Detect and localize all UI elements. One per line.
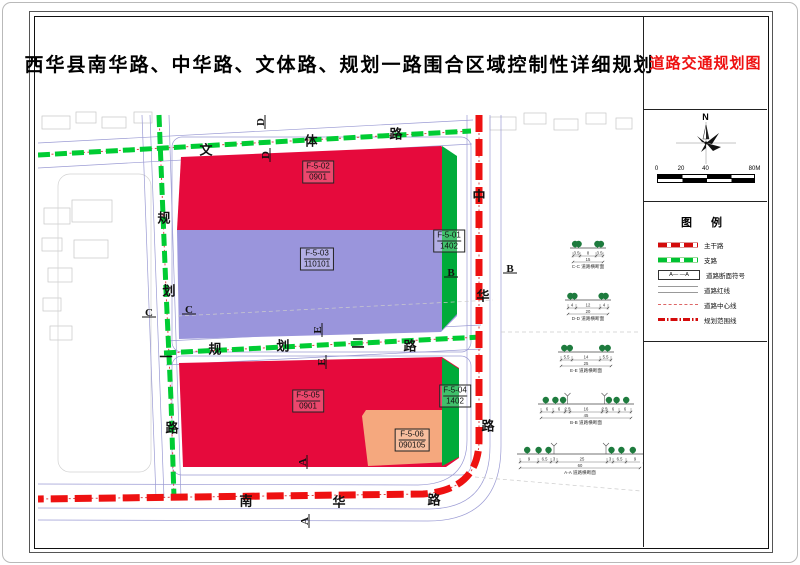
- parcel-label-F-5-06: F-5-06090105: [395, 429, 430, 452]
- map-shape: 4: [571, 302, 574, 307]
- road-name-char: 路: [427, 493, 441, 508]
- legend-item-section: A— —A道路断面符号: [658, 270, 767, 279]
- road-name-char: 路: [389, 127, 403, 142]
- section-marker-A: A: [299, 514, 311, 528]
- map-shape: 9: [528, 456, 531, 461]
- road-name-char: 华: [332, 495, 345, 510]
- road-name-char: 南: [239, 494, 252, 509]
- map-shape: 3.5: [597, 250, 603, 255]
- legend-label: 道路断面符号: [706, 270, 745, 280]
- map-shape: 12: [586, 302, 591, 307]
- parcel-use-code: 0901: [306, 172, 330, 183]
- map-shape: 8: [587, 250, 590, 255]
- parcel-F-5-04-area: [442, 358, 459, 466]
- section-marker-B: B: [503, 263, 517, 275]
- legend-item-arterial: 主干路: [658, 240, 767, 249]
- map-shape: 2.5: [602, 406, 608, 411]
- map-shape: 25: [584, 361, 589, 366]
- parcel-use-code: 1402: [437, 241, 461, 252]
- section-marker-D: D: [260, 148, 272, 162]
- road-name-char: 一: [159, 350, 172, 365]
- road-name-char: 划: [276, 339, 289, 354]
- road-name-char: 路: [481, 419, 495, 434]
- map-shape: [565, 393, 568, 396]
- map-shape: [603, 443, 606, 446]
- map-shape: 6: [612, 406, 615, 411]
- legend-item-centerline: 道路中心线: [658, 300, 767, 309]
- legend-label: 主干路: [704, 240, 724, 250]
- road-name-char: 规: [208, 342, 221, 357]
- cross-section-D-D: 412420D-D 道路横断面: [565, 293, 611, 322]
- map-shape: [605, 393, 608, 396]
- parcel-code: F-5-03: [304, 249, 330, 259]
- plan-map: 文体路规划一路规划二路中华路南华路DDCCEEBBAA3.583.515C-C …: [38, 110, 643, 547]
- tree-icon: [545, 447, 551, 453]
- map-shape: 3.5: [574, 250, 580, 255]
- parcel-label-F-5-03: F-5-03110101: [300, 248, 334, 271]
- tree-icon: [623, 397, 629, 403]
- parcel-label-F-5-05: F-5-050901: [292, 390, 324, 413]
- map-shape: 6: [558, 406, 561, 411]
- scale-bar: 0204080M: [657, 166, 755, 186]
- map-shape: 60: [578, 463, 583, 468]
- parcel-use-code: 0901: [296, 401, 320, 412]
- legend-label: 道路红线: [704, 285, 730, 295]
- map-shape: 3: [553, 456, 556, 461]
- legend-rows: 主干路支路A— —A道路断面符号道路红线道路中心线规划范围线: [644, 240, 767, 324]
- map-shape: B-B 道路横断面: [570, 419, 602, 426]
- map-shape: 4: [603, 302, 606, 307]
- parcel-code: F-5-05: [296, 391, 320, 401]
- tree-icon: [613, 397, 619, 403]
- tree-icon: [599, 345, 605, 351]
- map-shape: 2.5: [565, 406, 571, 411]
- parcel-label-F-5-01: F-5-011402: [433, 230, 465, 253]
- legend-title: 图 例: [644, 214, 767, 230]
- legend-symbol-branch-icon: [658, 257, 698, 263]
- tree-icon: [567, 345, 573, 351]
- parcel-code: F-5-01: [437, 231, 461, 241]
- right-panel: 道路交通规划图 N 0204080M 图 例 主干路支路A— —A道路断面符号道…: [643, 16, 767, 547]
- compass-icon: [674, 120, 738, 166]
- tree-icon: [561, 345, 567, 351]
- drawing-title: 道路交通规划图: [649, 52, 761, 73]
- map-shape: 6.5: [542, 456, 548, 461]
- map-shape: C-C 道路横断面: [572, 263, 605, 270]
- map-shape: 15: [586, 257, 591, 262]
- parcel-code: F-5-04: [443, 386, 467, 396]
- cross-section-C-C: 3.583.515C-C 道路横断面: [570, 241, 606, 270]
- road-name-char: 路: [165, 421, 179, 436]
- map-shape: 20: [586, 309, 591, 314]
- road-name-char: 路: [403, 339, 417, 354]
- legend-label: 支路: [704, 255, 717, 265]
- scale-tick: 20: [678, 166, 685, 172]
- map-shape: A-A 道路横断面: [564, 469, 596, 476]
- legend-symbol-section-icon: A— —A: [658, 270, 700, 280]
- legend-symbol-redline-icon: [658, 286, 698, 293]
- parcel-F-5-03-area: [177, 230, 457, 339]
- road-name-char: 规: [157, 211, 170, 226]
- tree-icon: [598, 241, 604, 247]
- legend-symbol-arterial-icon: [658, 242, 698, 248]
- tree-icon: [560, 397, 566, 403]
- tree-icon: [575, 241, 581, 247]
- legend-label: 道路中心线: [704, 300, 737, 310]
- tree-icon: [571, 293, 577, 299]
- north-label: N: [644, 112, 767, 122]
- road-name-char: 文: [199, 143, 213, 158]
- map-shape: D-D 道路横断面: [572, 315, 605, 322]
- plan-map-canvas: 文体路规划一路规划二路中华路南华路DDCCEEBBAA3.583.515C-C …: [38, 110, 643, 547]
- map-shape: 25: [580, 456, 585, 461]
- road-name-char: 二: [351, 336, 364, 351]
- map-shape: 5.5: [564, 354, 570, 359]
- drawing-title-cell: 道路交通规划图: [644, 16, 767, 110]
- cross-section-E-E: 5.5145.525E-E 道路横断面: [558, 345, 614, 374]
- map-shape: 6: [546, 406, 549, 411]
- scale-tick-labels: 0204080M: [657, 166, 755, 174]
- tree-icon: [543, 397, 549, 403]
- road-name-char: 中: [472, 189, 485, 204]
- map-shape: 45: [584, 413, 589, 418]
- parcel-label-F-5-04: F-5-041402: [439, 385, 471, 408]
- parcel-use-code: 110101: [304, 259, 330, 270]
- scale-tick: 0: [655, 166, 658, 172]
- map-shape: 5.5: [603, 354, 609, 359]
- scale-tick: 40: [702, 166, 709, 172]
- parcel-use-code: 1402: [443, 396, 467, 407]
- map-shape: [554, 443, 557, 446]
- tree-icon: [618, 447, 624, 453]
- tree-icon: [608, 447, 614, 453]
- map-shape: 14: [584, 354, 589, 359]
- road-name-char: 划: [162, 284, 175, 299]
- map-shape: E-E 道路横断面: [570, 367, 602, 374]
- parcel-code: F-5-06: [399, 430, 426, 440]
- legend-item-boundary: 规划范围线: [658, 315, 767, 324]
- legend-item-branch: 支路: [658, 255, 767, 264]
- map-shape: [551, 443, 554, 446]
- tree-icon: [630, 447, 636, 453]
- map-shape: [602, 393, 605, 396]
- legend-symbol-centerline-icon: [658, 304, 698, 305]
- tree-icon: [602, 293, 608, 299]
- section-marker-C: C: [142, 307, 156, 319]
- cross-section-A-A: 96.532536.5960A-A 道路横断面: [517, 443, 643, 476]
- map-shape: 9: [634, 456, 637, 461]
- road-name-char: 华: [476, 289, 489, 304]
- parcel-label-F-5-02: F-5-020901: [302, 161, 334, 184]
- map-shape: 16: [584, 406, 589, 411]
- road-name-char: 体: [304, 134, 318, 149]
- parcel-code: F-5-02: [306, 162, 330, 172]
- legend-label: 规划范围线: [704, 315, 737, 325]
- tree-icon: [552, 397, 558, 403]
- tree-icon: [605, 345, 611, 351]
- map-shape: 6.5: [617, 456, 623, 461]
- compass-scale-cell: N 0204080M: [644, 112, 767, 202]
- parcel-F-5-02-area: [177, 146, 457, 230]
- scale-tick: 80M: [749, 166, 761, 172]
- cross-section-B-B: 662.5162.56645B-B 道路横断面: [538, 393, 634, 426]
- tree-icon: [524, 447, 530, 453]
- legend-item-redline: 道路红线: [658, 285, 767, 294]
- empty-cell: [644, 342, 767, 544]
- tree-icon: [606, 397, 612, 403]
- section-marker-D: D: [255, 115, 267, 129]
- map-shape: [568, 393, 571, 396]
- legend-cell: 图 例 主干路支路A— —A道路断面符号道路红线道路中心线规划范围线: [644, 202, 767, 342]
- land-parcels: [177, 146, 459, 467]
- scale-bar-row: [657, 179, 755, 183]
- parcel-use-code: 090105: [399, 440, 426, 451]
- map-shape: 6: [624, 406, 627, 411]
- map-shape: [606, 443, 609, 446]
- map-shape: 3: [609, 456, 612, 461]
- tree-icon: [535, 447, 541, 453]
- page-title: 西华县南华路、中华路、文体路、规划一路围合区域控制性详细规划: [36, 16, 643, 110]
- legend-symbol-boundary-icon: [658, 318, 698, 321]
